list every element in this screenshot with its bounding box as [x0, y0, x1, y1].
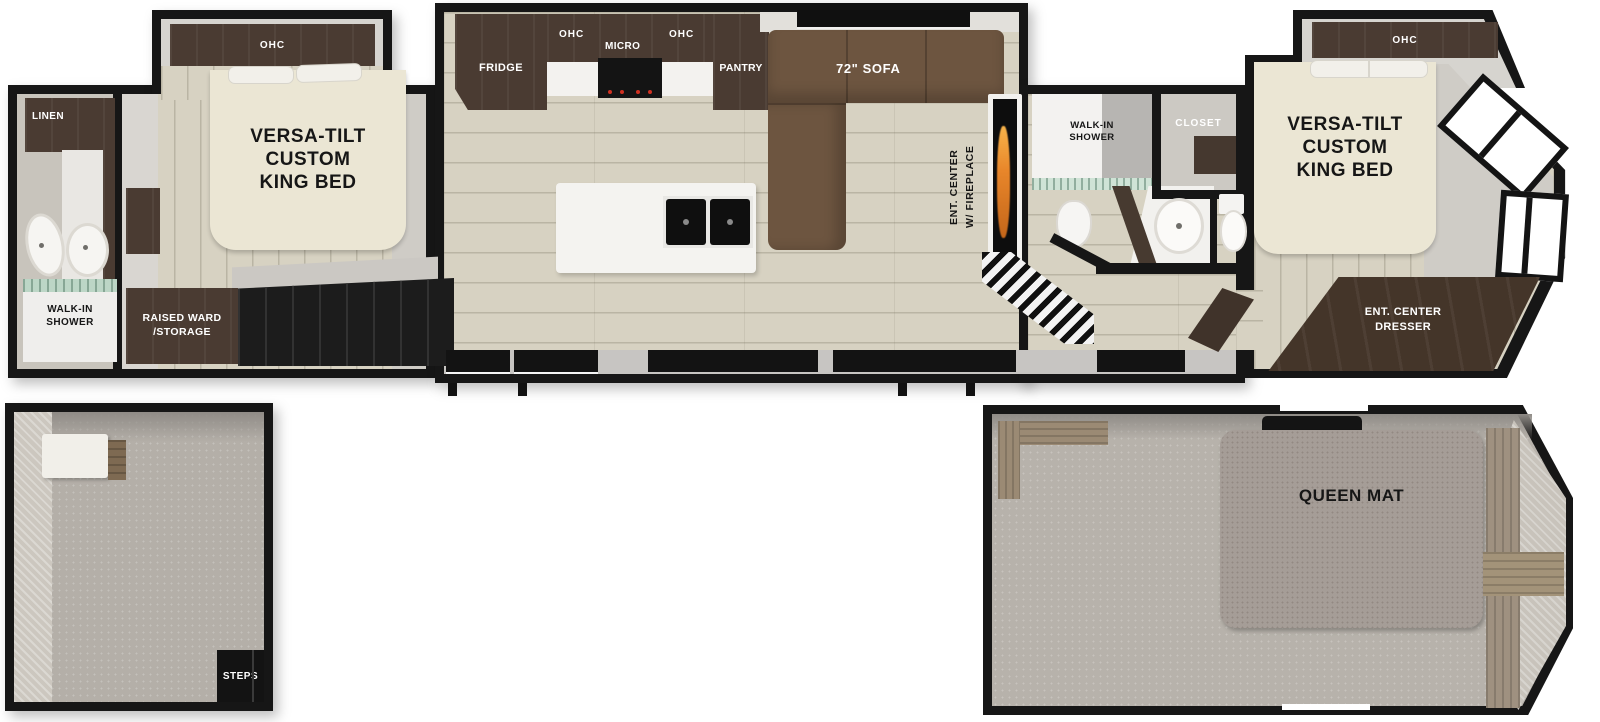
sink-basin-left: [666, 199, 706, 245]
range-knob-3: [636, 90, 640, 94]
vanity-sink-left-drain: [39, 243, 44, 248]
rear-shower-label: WALK-IN SHOWER: [23, 292, 117, 329]
rear-bed-pillow-right: [296, 63, 363, 83]
queen-mat: QUEEN MAT: [1220, 430, 1483, 628]
raised-ward-label-wrap: RAISED WARD /STORAGE: [126, 288, 238, 364]
sofa-seam-2: [925, 30, 927, 103]
linen-label: LINEN: [32, 111, 64, 122]
range-knob-1: [608, 90, 612, 94]
fridge-label: FRIDGE: [455, 62, 547, 74]
stabilizer-foot-1: [448, 383, 457, 396]
window-4: [833, 350, 1016, 372]
bed-base-storage: [238, 278, 454, 366]
vanity-sink-right-drain: [83, 245, 88, 250]
raised-ward-storage: RAISED WARD /STORAGE: [126, 288, 238, 364]
sink-drain-left: [683, 219, 689, 225]
rear-nightstand: [126, 188, 160, 254]
ent-center-fireplace-label: ENT. CENTER W/ FIREPLACE: [947, 98, 991, 276]
front-loft-window-trim-top: [1280, 405, 1368, 411]
vanity-toilet-wall: [1210, 190, 1217, 266]
front-bed-pillow: [1310, 60, 1428, 78]
front-ohc-cabinet: OHC: [1312, 22, 1498, 58]
island-double-sink: [663, 196, 753, 248]
window-3: [648, 350, 818, 372]
stabilizer-foot-2: [518, 383, 527, 396]
micro-label: MICRO: [605, 41, 640, 52]
range-microwave: [598, 58, 662, 98]
kitchen-ohc-band: OHC MICRO OHC: [547, 14, 717, 62]
front-loft-wood-strip-upper: [1486, 428, 1520, 554]
mid-bath-bottom-wall: [1096, 263, 1236, 274]
front-loft-wood-strip-lower: [1486, 596, 1520, 708]
closet-label: CLOSET: [1161, 118, 1236, 129]
fridge-cabinet: FRIDGE: [455, 14, 547, 110]
steps-label-wrap: STEPS: [217, 650, 264, 702]
sink-drain-right: [727, 219, 733, 225]
mid-bath-sink-drain: [1176, 223, 1182, 229]
rear-bed-pillow-left: [228, 66, 294, 84]
front-window-upper-divider: [1479, 111, 1522, 159]
steps-divider: [252, 650, 254, 702]
closet-shelf: [1194, 136, 1236, 174]
window-1: [446, 350, 510, 374]
rear-walk-in-shower: WALK-IN SHOWER: [23, 292, 117, 362]
range-knob-2: [620, 90, 624, 94]
front-bed: VERSA-TILT CUSTOM KING BED: [1254, 62, 1436, 254]
ent-center-dresser-label: ENT. CENTER DRESSER: [1365, 305, 1442, 335]
mid-walk-in-shower: WALK-IN SHOWER: [1032, 94, 1152, 190]
closet: CLOSET: [1161, 94, 1236, 190]
rear-loft-cabinet-side: [108, 440, 126, 480]
range-knob-4: [648, 90, 652, 94]
window-2: [514, 350, 598, 374]
front-ohc-label: OHC: [1392, 35, 1417, 46]
window-above-sofa: [797, 10, 970, 29]
rear-loft-steps: STEPS: [217, 650, 264, 702]
sofa-label: 72" SOFA: [836, 61, 900, 76]
raised-ward-label: RAISED WARD /STORAGE: [142, 312, 221, 339]
stabilizer-foot-3: [898, 383, 907, 396]
sink-basin-right: [710, 199, 750, 245]
front-loft-wood-crossbar: [1483, 552, 1564, 596]
ohc-left-label: OHC: [559, 29, 584, 40]
ohc-right-label: OHC: [669, 29, 694, 40]
front-loft-window-trim-bottom: [1282, 704, 1370, 710]
rear-loft-cabinet: [42, 434, 108, 478]
shower-closet-wall: [1152, 94, 1161, 190]
rear-bed: VERSA-TILT CUSTOM KING BED: [210, 70, 406, 250]
fireplace-flame: [997, 126, 1010, 238]
stabilizer-foot-4: [966, 383, 975, 396]
mid-bath-toilet-right-bowl: [1220, 210, 1247, 252]
rear-shower-glass: [23, 279, 117, 292]
front-window-lower: [1495, 190, 1569, 283]
linen-cabinet: LINEN: [25, 98, 103, 152]
front-ohc-label-wrap: OHC: [1312, 22, 1498, 58]
rear-ohc-label-wrap: OHC: [170, 24, 375, 66]
sofa-seam-3: [768, 103, 846, 105]
front-bed-label: VERSA-TILT CUSTOM KING BED: [1254, 62, 1436, 182]
rear-ohc-cabinet: OHC: [170, 24, 375, 66]
sofa-chaise-section: [768, 103, 846, 250]
window-5: [1097, 350, 1185, 372]
mid-shower-label: WALK-IN SHOWER: [1032, 94, 1152, 145]
vanity-sink-right: [66, 223, 109, 277]
pantry-label: PANTRY: [713, 62, 769, 74]
queen-mat-label: QUEEN MAT: [1220, 430, 1483, 506]
ent-center-fireplace-text: ENT. CENTER W/ FIREPLACE: [947, 98, 979, 276]
front-window-lower-divider: [1521, 198, 1532, 274]
front-bed-pillow-seam: [1368, 61, 1370, 77]
rear-bed-label: VERSA-TILT CUSTOM KING BED: [210, 70, 406, 194]
mid-shower-glass: [1032, 178, 1152, 190]
rv-floorplan: LINEN WALK-IN SHOWER OHC VERSA-TILT CUST…: [0, 0, 1600, 722]
rear-ohc-label: OHC: [260, 40, 285, 51]
front-loft-wood-corner-v: [998, 421, 1020, 499]
mid-bath-sink: [1154, 198, 1204, 254]
